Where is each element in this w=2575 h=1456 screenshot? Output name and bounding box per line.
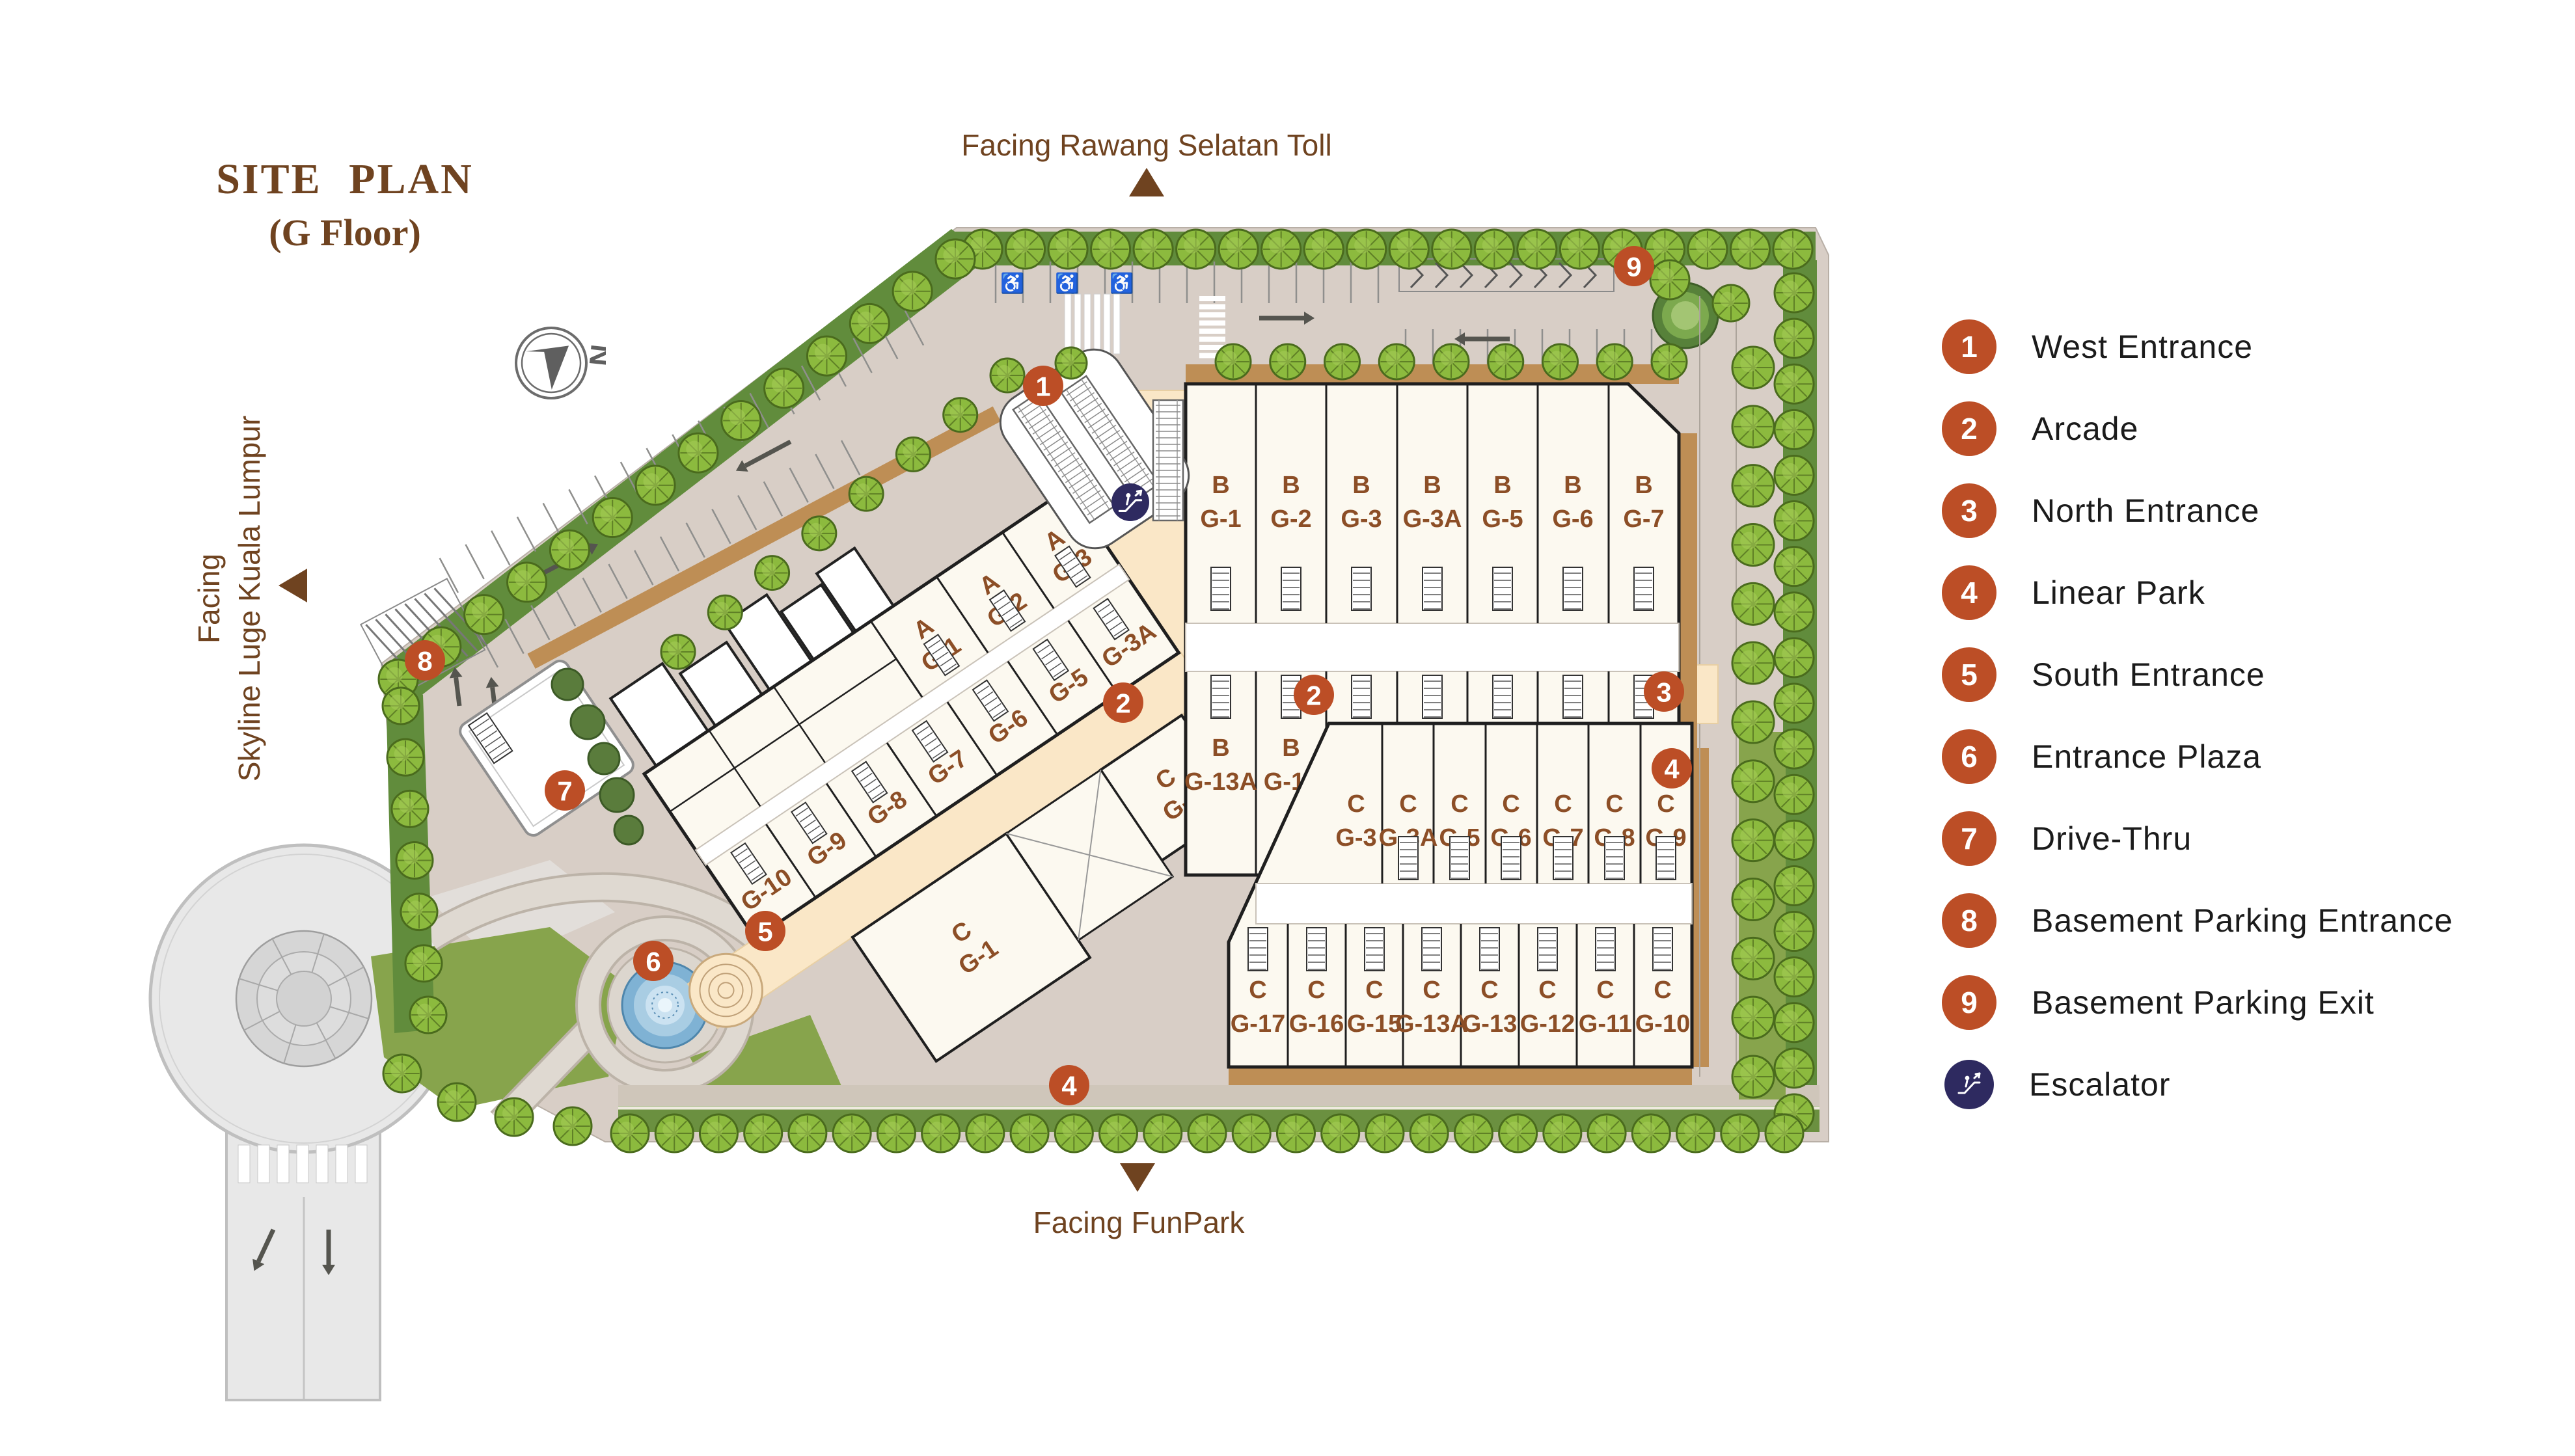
corridor <box>1186 623 1679 671</box>
unit-code: G-13A <box>1395 1010 1468 1038</box>
facing-west-label: Facing Skyline Luge Kuala Lumpur <box>189 416 269 782</box>
badge-number: 8 <box>417 646 432 677</box>
tree-icon <box>1732 347 1774 388</box>
tree-icon <box>1632 1114 1670 1152</box>
tree-icon <box>922 1114 960 1152</box>
tree-icon <box>508 563 547 602</box>
stair-core <box>1634 567 1654 610</box>
tree-icon <box>1277 1114 1315 1152</box>
tree-icon <box>1011 1114 1048 1152</box>
line <box>491 531 510 565</box>
stair-core <box>1501 837 1521 880</box>
stair-core <box>1365 928 1384 971</box>
unit-letter: B <box>1423 472 1441 499</box>
unit-letter: C <box>1365 977 1383 1004</box>
tree-icon <box>1775 729 1814 768</box>
tree-icon <box>1732 1056 1774 1098</box>
unit-code: G-1 <box>1200 506 1241 533</box>
page-title: SITE PLAN (G Floor) <box>216 155 474 254</box>
tree-icon <box>383 1055 421 1092</box>
shrub-icon <box>614 816 643 844</box>
unit-code: G-13A <box>1184 768 1257 796</box>
legend-number-badge: 8 <box>1942 893 1996 948</box>
tree-icon <box>1713 285 1749 321</box>
legend-item-label: Basement Parking Exit <box>2032 984 2375 1021</box>
badge-linear-park-east: 4 <box>1652 748 1692 789</box>
line <box>440 558 458 593</box>
shrub-icon <box>588 743 620 774</box>
unit-letter: B <box>1282 735 1300 762</box>
tree-icon <box>1544 1114 1581 1152</box>
line <box>543 503 562 537</box>
tree-icon <box>1588 1114 1626 1152</box>
facing-west-arrow-icon <box>279 569 307 602</box>
stair-core <box>1493 675 1512 718</box>
unit-letter: C <box>1554 790 1572 818</box>
tree-icon <box>896 437 930 471</box>
tree-icon <box>655 1114 693 1152</box>
tree-icon <box>396 843 433 879</box>
legend-item-arcade: 2Arcade <box>1942 401 2453 456</box>
tree-icon <box>1188 1114 1226 1152</box>
accessible-parking-icon: ♿ <box>1110 272 1134 295</box>
tree-icon <box>877 1114 915 1152</box>
unit-letter: B <box>1212 735 1229 762</box>
shrub-icon <box>600 778 634 812</box>
stair-core <box>1563 567 1583 610</box>
tree-icon <box>1475 230 1514 269</box>
legend-item-label: Arcade <box>2032 410 2138 448</box>
tree-icon <box>1688 230 1727 269</box>
stair-core <box>1422 928 1441 971</box>
tree-icon <box>1765 1114 1803 1152</box>
facing-north-label: Facing Rawang Selatan Toll <box>961 128 1331 163</box>
site-plan-canvas: ♿♿♿AG-1AG-2AG-3AG-10AG-9AG-8AG-7AG-6AG-5… <box>0 0 2575 1456</box>
tree-icon <box>1270 344 1305 379</box>
stair-core <box>1211 675 1231 718</box>
unit-letter: C <box>1399 790 1417 818</box>
stair-core <box>1398 837 1418 880</box>
tree-icon <box>833 1114 871 1152</box>
tree-icon <box>554 1107 592 1145</box>
unit-code: G-2 <box>1270 506 1311 533</box>
tree-icon <box>1775 319 1814 358</box>
legend-item-label: Basement Parking Entrance <box>2032 902 2453 939</box>
unit-letter: C <box>1538 977 1556 1004</box>
accessible-parking-icon: ♿ <box>1000 272 1024 295</box>
tree-icon <box>1775 866 1814 905</box>
tree-icon <box>756 556 789 590</box>
tree-icon <box>1732 997 1774 1038</box>
tree-icon <box>1144 1114 1182 1152</box>
badge-number: 2 <box>1306 681 1321 711</box>
tree-icon <box>1177 230 1216 269</box>
unit-letter: B <box>1212 472 1229 499</box>
tree-icon <box>1347 230 1386 269</box>
tree-icon <box>1056 347 1087 379</box>
unit-letter: C <box>1451 790 1468 818</box>
tree-icon <box>1499 1114 1537 1152</box>
shrub-icon <box>552 669 583 700</box>
badge-basement-parking-exit: 9 <box>1614 246 1654 286</box>
badge-number: 6 <box>646 947 661 977</box>
badge-south-entrance: 5 <box>745 911 785 951</box>
legend-item-basement-parking-exit: 9Basement Parking Exit <box>1942 975 2453 1030</box>
legend-number-badge: 4 <box>1942 565 1996 620</box>
tree-icon <box>1730 230 1769 269</box>
unit-code: G-3 <box>1335 824 1376 852</box>
badge-number: 4 <box>1664 754 1680 785</box>
tree-icon <box>1454 1114 1492 1152</box>
stair-core <box>1493 567 1512 610</box>
tree-icon <box>1518 230 1557 269</box>
legend-item-label: Linear Park <box>2032 574 2205 612</box>
page-title-line2: (G Floor) <box>216 211 474 254</box>
unit-code: G-7 <box>1623 506 1664 533</box>
badge-number: 9 <box>1626 252 1641 282</box>
badge-north-entrance: 3 <box>1644 671 1684 712</box>
tree-icon <box>1216 344 1251 379</box>
badge-arcade-west: 2 <box>1103 682 1143 723</box>
stair-core <box>1605 837 1624 880</box>
legend-item-basement-parking-entrance: 8Basement Parking Entrance <box>1942 893 2453 948</box>
tree-icon <box>1775 958 1814 997</box>
tree-icon <box>1219 230 1258 269</box>
badge-number: 1 <box>1035 371 1050 402</box>
tree-icon <box>1325 344 1360 379</box>
legend-item-label: North Entrance <box>2032 492 2259 530</box>
badge-number: 7 <box>557 776 572 807</box>
tree-icon <box>990 358 1024 392</box>
tree-icon <box>807 336 846 375</box>
tree-icon <box>1732 820 1774 861</box>
tree-icon <box>1304 230 1343 269</box>
tree-icon <box>1775 1003 1814 1042</box>
unit-code: G-10 <box>1635 1010 1690 1038</box>
tree-icon <box>1775 593 1814 632</box>
unit-letter: B <box>1352 472 1370 499</box>
legend-item-linear-park: 4Linear Park <box>1942 565 2453 620</box>
tree-icon <box>1389 230 1428 269</box>
unit-code: G-11 <box>1579 1010 1632 1038</box>
tree-icon <box>1775 273 1814 312</box>
badge-number: 2 <box>1115 688 1130 719</box>
legend-number-badge: 5 <box>1942 647 1996 702</box>
tree-icon <box>802 517 836 550</box>
legend-item-escalator: Escalator <box>1942 1057 2453 1112</box>
unit-letter: C <box>1596 977 1614 1004</box>
badge-basement-parking-entrance: 8 <box>405 640 445 681</box>
badge-number: 5 <box>757 917 772 947</box>
tree-icon <box>387 739 424 775</box>
escalator-icon <box>1944 1060 1994 1109</box>
badge-linear-park-south: 4 <box>1049 1065 1089 1105</box>
tree-icon <box>1262 230 1301 269</box>
unit-code: G-16 <box>1289 1010 1344 1038</box>
stair-core <box>1656 837 1676 880</box>
legend-item-label: Drive-Thru <box>2032 820 2192 857</box>
tree-icon <box>893 272 932 311</box>
line <box>517 517 536 552</box>
stair-core <box>1211 567 1231 610</box>
tree-icon <box>1775 455 1814 494</box>
tree-icon <box>661 635 695 669</box>
tree-icon <box>1775 364 1814 403</box>
tree-icon <box>1100 1114 1138 1152</box>
unit-letter: B <box>1493 472 1511 499</box>
tree-icon <box>708 595 742 629</box>
unit-code: G-13 <box>1462 1010 1517 1038</box>
unit-code: G-3 <box>1341 506 1382 533</box>
unit-letter: C <box>1347 790 1365 818</box>
tree-icon <box>495 1098 533 1136</box>
unit-letter: B <box>1635 472 1652 499</box>
tree-icon <box>410 997 446 1033</box>
tree-icon <box>1732 406 1774 448</box>
compass-n-label: N <box>583 343 606 368</box>
compass-icon: N <box>508 320 606 405</box>
legend-item-label: West Entrance <box>2032 328 2253 366</box>
unit-letter: C <box>1657 790 1674 818</box>
facing-south-label: Facing FunPark <box>1033 1205 1245 1240</box>
tree-icon <box>1379 344 1414 379</box>
legend-number-badge: 9 <box>1942 975 1996 1030</box>
tree-icon <box>1134 230 1173 269</box>
tree-icon <box>1652 344 1687 379</box>
stair-core <box>1653 928 1672 971</box>
tree-icon <box>700 1114 737 1152</box>
line <box>465 545 484 579</box>
badge-west-entrance: 1 <box>1023 366 1063 406</box>
facing-south-arrow-icon <box>1120 1163 1155 1192</box>
badge-number: 3 <box>1656 677 1671 708</box>
tree-icon <box>1775 547 1814 586</box>
legend-item-label: Escalator <box>2029 1066 2170 1103</box>
tree-icon <box>966 1114 1004 1152</box>
tree-icon <box>1732 761 1774 802</box>
stair-core <box>1450 837 1469 880</box>
legend-number-badge: 3 <box>1942 483 1996 538</box>
tree-icon <box>1677 1114 1715 1152</box>
tree-icon <box>1434 344 1469 379</box>
legend-item-west-entrance: 1West Entrance <box>1942 319 2453 374</box>
tree-icon <box>850 304 889 343</box>
tree-icon <box>1006 230 1045 269</box>
badge-escalator <box>1111 483 1149 521</box>
tree-icon <box>1732 879 1774 921</box>
tree-icon <box>679 433 718 472</box>
unit-code: G-15 <box>1347 1010 1402 1038</box>
tree-icon <box>465 595 504 634</box>
legend: 1West Entrance2Arcade3North Entrance4Lin… <box>1942 319 2453 1139</box>
tree-icon <box>849 477 883 511</box>
tree-icon <box>1775 820 1814 859</box>
stair-core <box>1307 928 1326 971</box>
tree-icon <box>1732 937 1774 979</box>
stair-core <box>1423 567 1442 610</box>
tree-icon <box>1721 1114 1759 1152</box>
tree-icon <box>1560 230 1599 269</box>
legend-number-badge: 1 <box>1942 319 1996 374</box>
legend-item-label: South Entrance <box>2032 656 2265 694</box>
unit-letter: B <box>1564 472 1581 499</box>
unit-letter: C <box>1605 790 1623 818</box>
tree-icon <box>401 894 437 930</box>
tree-icon <box>789 1114 826 1152</box>
legend-item-south-entrance: 5South Entrance <box>1942 647 2453 702</box>
tree-icon <box>1775 502 1814 541</box>
unit-letter: C <box>1654 977 1671 1004</box>
badge-number: 4 <box>1061 1071 1077 1101</box>
unit-letter: C <box>1307 977 1325 1004</box>
tree-icon <box>1432 230 1471 269</box>
tree-icon <box>722 401 761 440</box>
tree-icon <box>1775 912 1814 951</box>
facing-north-arrow-icon <box>1129 168 1164 196</box>
legend-number-badge: 6 <box>1942 729 1996 784</box>
tree-icon <box>550 530 589 569</box>
legend-item-drive-thru: 7Drive-Thru <box>1942 811 2453 866</box>
tree-icon <box>1488 344 1523 379</box>
tree-icon <box>1055 1114 1093 1152</box>
badge-entrance-plaza: 6 <box>633 941 674 981</box>
unit-code: G-12 <box>1520 1010 1575 1038</box>
corridor <box>1256 883 1692 924</box>
unit-code: G-3A <box>1403 506 1462 533</box>
tree-icon <box>1775 1049 1814 1088</box>
legend-number-badge: 7 <box>1942 811 1996 866</box>
tree-icon <box>765 369 804 408</box>
tree-icon <box>1775 684 1814 723</box>
legend-item-north-entrance: 3North Entrance <box>1942 483 2453 538</box>
legend-number-badge: 2 <box>1942 401 1996 456</box>
tree-icon <box>1233 1114 1270 1152</box>
tree-icon <box>405 945 442 982</box>
stair-core <box>1352 567 1371 610</box>
unit-code: G-6 <box>1552 506 1593 533</box>
tree-icon <box>593 498 632 537</box>
tree-icon <box>1322 1114 1359 1152</box>
tree-icon <box>438 1083 476 1121</box>
tree-icon <box>1732 524 1774 566</box>
unit-letter: B <box>1282 472 1300 499</box>
unit-letter: C <box>1502 790 1519 818</box>
stair-core <box>1480 928 1499 971</box>
unit-code: G-17 <box>1231 1010 1285 1038</box>
tree-icon <box>1775 410 1814 449</box>
tree-icon <box>1366 1114 1404 1152</box>
tree-icon <box>1597 344 1632 379</box>
badge-arcade-east: 2 <box>1294 675 1334 715</box>
tree-icon <box>383 688 419 724</box>
legend-item-entrance-plaza: 6Entrance Plaza <box>1942 729 2453 784</box>
stair-core <box>1352 675 1371 718</box>
tree-icon <box>1732 583 1774 625</box>
stair-core <box>1281 567 1301 610</box>
unit-letter: C <box>1480 977 1498 1004</box>
shrub-icon <box>571 705 605 739</box>
tree-icon <box>1773 230 1812 269</box>
page-title-line1: SITE PLAN <box>216 155 474 204</box>
tree-icon <box>1732 642 1774 684</box>
stair-core <box>1248 928 1268 971</box>
tree-icon <box>936 239 975 278</box>
accessible-parking-icon: ♿ <box>1055 272 1079 295</box>
unit-letter: C <box>1423 977 1440 1004</box>
stair-core <box>1563 675 1583 718</box>
tree-icon <box>1650 260 1689 299</box>
tree-icon <box>1732 701 1774 743</box>
tree-icon <box>1732 465 1774 507</box>
tree-icon <box>392 790 428 827</box>
legend-item-label: Entrance Plaza <box>2032 738 2261 775</box>
tree-icon <box>611 1114 649 1152</box>
stair-core <box>1553 837 1573 880</box>
tree-icon <box>1543 344 1578 379</box>
tree-icon <box>1091 230 1130 269</box>
escalator-run <box>1153 400 1183 520</box>
badge-drive-thru: 7 <box>545 770 585 811</box>
tree-icon <box>944 398 977 432</box>
tree-icon <box>636 466 675 505</box>
tree-icon <box>1048 230 1087 269</box>
tree-icon <box>1775 775 1814 814</box>
tree-icon <box>1775 638 1814 677</box>
unit-letter: C <box>1249 977 1266 1004</box>
stair-core <box>1423 675 1442 718</box>
unit-code: G-5 <box>1482 506 1523 533</box>
tree-icon <box>1410 1114 1448 1152</box>
tree-icon <box>744 1114 782 1152</box>
stair-core <box>1596 928 1615 971</box>
stair-core <box>1538 928 1557 971</box>
